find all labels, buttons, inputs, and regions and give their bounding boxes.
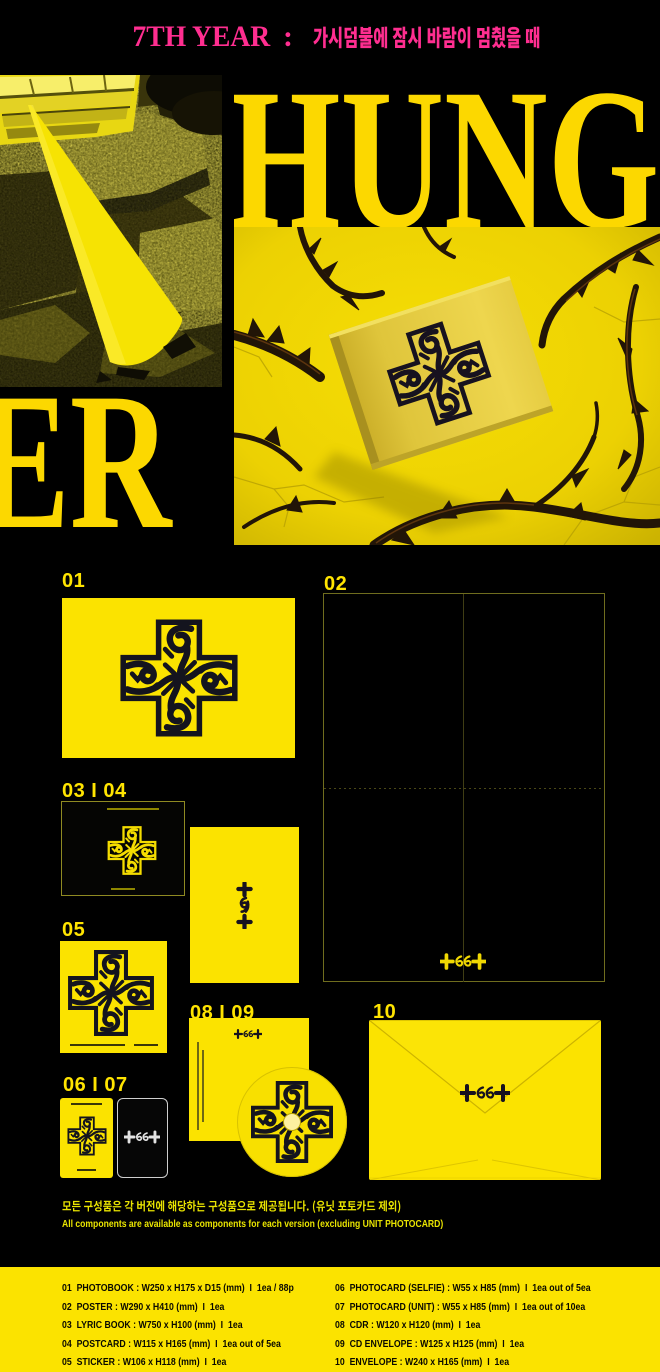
svg-text:7TH YEAR: 7TH YEAR: [133, 20, 272, 53]
svg-text:HUNG: HUNG: [234, 75, 659, 227]
svg-text:ER: ER: [0, 387, 173, 545]
svg-text::: :: [283, 20, 293, 53]
